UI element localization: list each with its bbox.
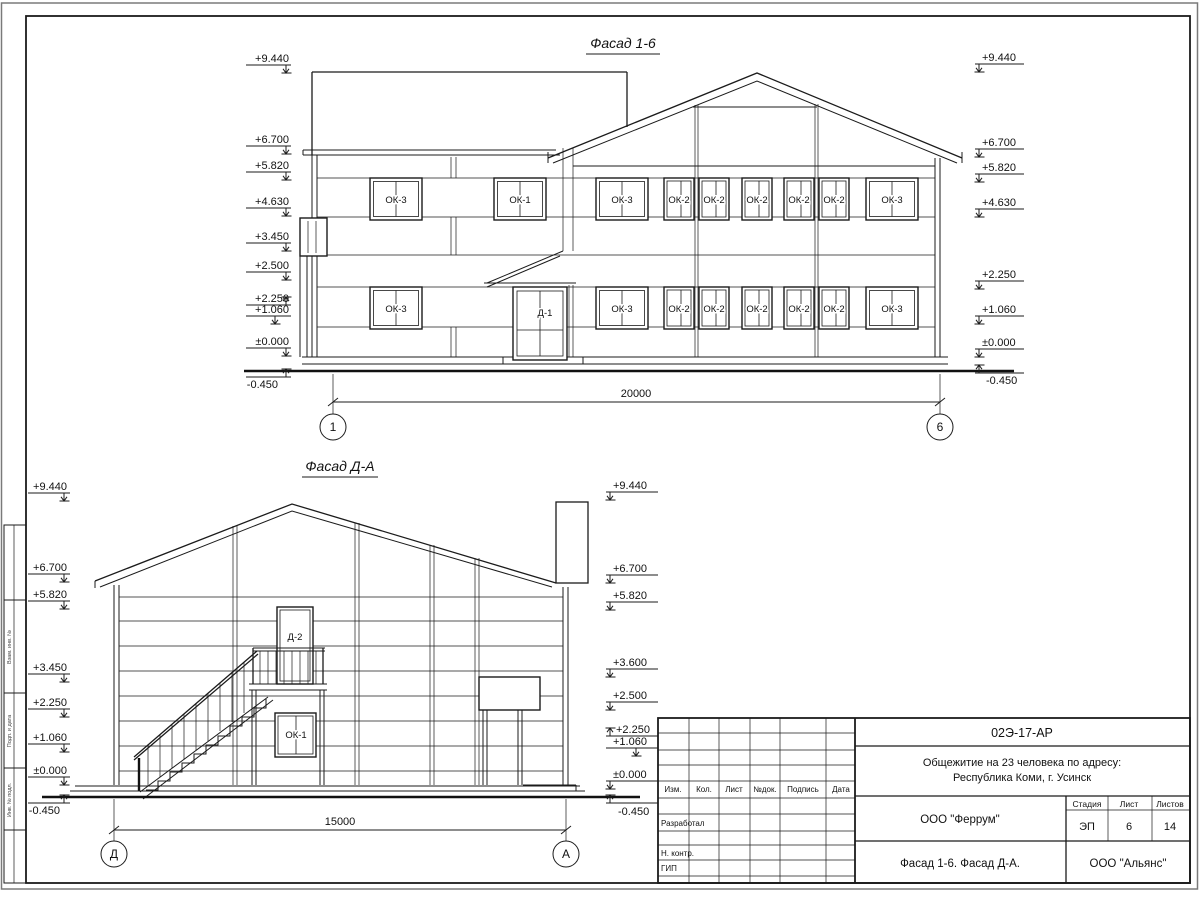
window-row-upper: ОК-3 ОК-1 ОК-3 ОК-2 ОК-2 ОК-2 ОК-2 ОК-2 … <box>370 178 918 220</box>
title-block: Изм. Кол. Лист №док. Подпись Дата Разраб… <box>658 718 1190 883</box>
sheets-total: 14 <box>1164 821 1176 833</box>
entrance-door: Д-1 <box>484 251 576 360</box>
dimension-20000: 20000 <box>328 374 945 414</box>
elevation-mark: +2.250 <box>982 269 1016 281</box>
window-label: ОК-2 <box>668 195 689 206</box>
window-label: ОК-2 <box>823 195 844 206</box>
elevation-mark: +6.700 <box>255 134 289 146</box>
stage-header: Стадия <box>1073 799 1102 809</box>
drawing-sheet: Взам. инв. № Подп. и дата Инв. № подл. Ф… <box>0 0 1200 900</box>
elevation-mark: +4.630 <box>982 197 1016 209</box>
elevation-mark: +1.060 <box>33 732 67 744</box>
dimension-value: 15000 <box>325 816 356 828</box>
axis-label: 1 <box>330 420 337 434</box>
facade-d-a: Фасад Д-А Д-2 <box>28 458 658 867</box>
elevation-mark: +9.440 <box>613 480 647 492</box>
axis-label: А <box>562 847 570 861</box>
elevation-mark: +6.700 <box>982 137 1016 149</box>
window-label: ОК-3 <box>881 304 902 315</box>
window-label: ОК-3 <box>385 304 406 315</box>
col-header: Дата <box>832 785 850 794</box>
sheet-header: Лист <box>1120 799 1139 809</box>
elevation-mark: +4.630 <box>255 196 289 208</box>
window-label: ОК-3 <box>881 195 902 206</box>
elevation-mark: +2.250 <box>33 697 67 709</box>
elevation-mark: -0.450 <box>247 379 278 391</box>
elevation-mark: +5.820 <box>613 590 647 602</box>
sheets-header: Листов <box>1156 799 1184 809</box>
wall-lines <box>70 523 585 791</box>
window-label: ОК-3 <box>611 304 632 315</box>
client-org: ООО "Альянс" <box>1090 858 1167 870</box>
col-header: Подпись <box>787 785 819 794</box>
stamp-label: Подп. и дата <box>7 714 13 747</box>
elevation-mark: +6.700 <box>33 562 67 574</box>
frame-stamp-column: Взам. инв. № Подп. и дата Инв. № подл. <box>4 525 26 883</box>
designer-org: ООО "Феррум" <box>920 814 1000 826</box>
row-label: ГИП <box>661 864 677 873</box>
upper-door: Д-2 <box>277 607 313 684</box>
window-label: ОК-2 <box>823 304 844 315</box>
dimension-value: 20000 <box>621 388 652 400</box>
window-label: ОК-2 <box>746 304 767 315</box>
elevation-mark: ±0.000 <box>982 337 1016 349</box>
roof <box>95 502 588 588</box>
sheet-number: 6 <box>1126 821 1132 833</box>
drawing-canvas: Взам. инв. № Подп. и дата Инв. № подл. Ф… <box>0 0 1200 900</box>
stamp-label: Инв. № подл. <box>7 782 13 817</box>
axis-bubbles: Д А <box>101 841 579 867</box>
facade-1-6-title: Фасад 1-6 <box>590 35 656 51</box>
elevation-marks-right: +9.440 +6.700 +5.820 +3.600 +2.500 +2.25… <box>606 480 659 818</box>
sheet-title: Фасад 1-6. Фасад Д-А. <box>900 858 1020 870</box>
window-label: ОК-2 <box>703 304 724 315</box>
elevation-marks-left: +9.440 +6.700 +5.820 +4.630 +3.450 +2.50… <box>246 53 292 391</box>
row-label: Н. контр. <box>661 849 694 858</box>
elevation-mark: +1.060 <box>613 736 647 748</box>
elevation-mark: +3.600 <box>613 657 647 669</box>
elevation-mark: +6.700 <box>613 563 647 575</box>
elevation-mark: +9.440 <box>255 53 289 65</box>
window-label: ОК-2 <box>668 304 689 315</box>
elevation-mark: +1.060 <box>255 304 289 316</box>
elevation-mark: +2.250 <box>616 724 650 736</box>
window-label: ОК-1 <box>509 195 530 206</box>
col-header: Лист <box>725 785 743 794</box>
col-header: №док. <box>753 785 776 794</box>
col-header: Изм. <box>664 785 681 794</box>
door-label: Д-2 <box>288 632 303 643</box>
facade-d-a-title: Фасад Д-А <box>305 458 374 474</box>
elevation-mark: +5.820 <box>255 160 289 172</box>
axis-label: 6 <box>937 420 944 434</box>
elevation-mark: +5.820 <box>33 589 67 601</box>
elevation-mark: -0.450 <box>29 805 60 817</box>
window-label: ОК-2 <box>746 195 767 206</box>
elevation-marks-right: +9.440 +6.700 +5.820 +4.630 +2.250 +1.06… <box>975 52 1025 387</box>
side-porch <box>479 677 576 791</box>
elevation-mark: +1.060 <box>982 304 1016 316</box>
elevation-mark: +2.500 <box>255 260 289 272</box>
elevation-mark: +3.450 <box>33 662 67 674</box>
elevation-mark: +9.440 <box>33 481 67 493</box>
elevation-mark: ±0.000 <box>33 765 67 777</box>
elevation-mark: ±0.000 <box>255 336 289 348</box>
window-label: ОК-1 <box>285 730 306 741</box>
door-label: Д-1 <box>538 308 553 319</box>
window-label: ОК-2 <box>788 195 809 206</box>
stage-value: ЭП <box>1079 821 1095 833</box>
window-label: ОК-2 <box>788 304 809 315</box>
window-label: ОК-3 <box>611 195 632 206</box>
window-label: ОК-3 <box>385 195 406 206</box>
elevation-mark: +9.440 <box>982 52 1016 64</box>
facade-1-6: Фасад 1-6 ОК-3 <box>244 35 1024 440</box>
elevation-mark: -0.450 <box>618 806 649 818</box>
stamp-label: Взам. инв. № <box>7 630 13 664</box>
elevation-mark: +3.450 <box>255 231 289 243</box>
elevation-mark: +5.820 <box>982 162 1016 174</box>
col-header: Кол. <box>696 785 712 794</box>
document-number: 02Э-17-АР <box>991 726 1053 740</box>
roof <box>303 72 962 166</box>
side-window: ОК-1 <box>275 713 316 757</box>
elevation-mark: ±0.000 <box>613 769 647 781</box>
elevation-marks-left: +9.440 +6.700 +5.820 +3.450 +2.250 +1.06… <box>28 481 70 817</box>
project-name-line2: Республика Коми, г. Усинск <box>953 772 1091 784</box>
elevation-mark: +2.500 <box>613 690 647 702</box>
window-label: ОК-2 <box>703 195 724 206</box>
axis-label: Д <box>110 847 118 861</box>
elevation-mark: -0.450 <box>986 375 1017 387</box>
project-name-line1: Общежитие на 23 человека по адресу: <box>923 757 1121 769</box>
dimension-15000: 15000 <box>109 799 571 841</box>
axis-bubbles: 1 6 <box>320 414 953 440</box>
chimney <box>300 218 327 357</box>
row-label: Разработал <box>661 819 705 828</box>
window-row-lower: ОК-3 ОК-3 ОК-2 ОК-2 ОК-2 ОК-2 ОК-2 ОК-3 <box>370 287 918 329</box>
